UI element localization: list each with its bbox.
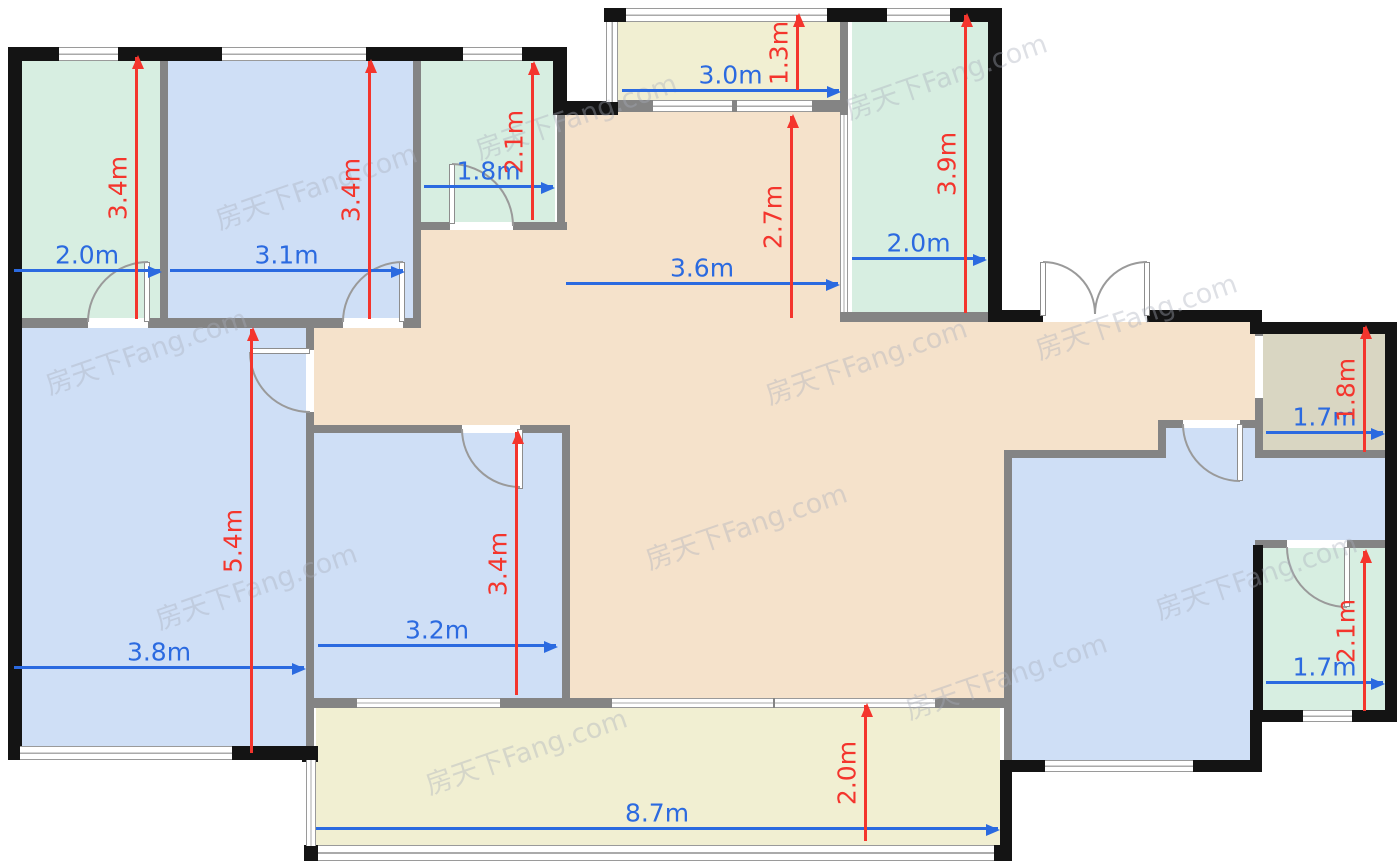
door-opening: [450, 222, 513, 230]
dim-label: 2.0m: [55, 241, 119, 270]
dim-label: 3.4m: [337, 158, 366, 222]
wall-segment: [1250, 322, 1397, 334]
window: [1303, 710, 1352, 722]
window: [306, 760, 316, 846]
room-living-dining-floor: [565, 112, 848, 698]
window: [887, 8, 950, 22]
wall-segment: [604, 8, 626, 22]
dim-label: 2.7m: [759, 185, 788, 249]
dim-living-dining-width: 3.6m: [566, 282, 838, 285]
door-leaf: [449, 164, 455, 224]
dim-label: 3.2m: [405, 616, 469, 645]
window: [463, 47, 522, 61]
door-opening: [343, 318, 403, 328]
door-leaf: [1237, 424, 1243, 481]
window: [318, 845, 994, 861]
wall-segment: [994, 845, 1012, 861]
dim-bedroom-top-left-height: 3.4m: [135, 57, 138, 319]
dim-label: 3.8m: [127, 638, 191, 667]
window: [222, 47, 366, 61]
door-leaf: [250, 348, 310, 354]
wall-segment: [306, 425, 570, 433]
dim-label: 8.7m: [625, 799, 689, 828]
door-opening: [1255, 336, 1263, 398]
window: [653, 100, 732, 112]
dim-label: 1.8m: [1332, 357, 1361, 421]
wall-segment: [553, 101, 618, 115]
dim-bedroom-top-left-width: 2.0m: [14, 269, 160, 272]
door-opening: [1183, 420, 1240, 428]
dim-label: 5.4m: [219, 509, 248, 573]
room-living-dining-floor: [314, 326, 421, 425]
dim-label: 3.6m: [670, 254, 734, 283]
wall-segment: [1385, 322, 1397, 722]
room-bathroom-right-floor: [1263, 548, 1385, 710]
dim-label: 3.4m: [484, 531, 513, 595]
dim-kitchen-height: 3.9m: [964, 15, 967, 313]
room-bedroom-master-floor: [1012, 457, 1255, 760]
room-bedroom-middle-floor: [314, 433, 562, 698]
window: [1045, 760, 1193, 772]
dim-label: 3.4m: [104, 156, 133, 220]
wall-segment: [1000, 760, 1012, 857]
wall-segment: [413, 61, 421, 322]
window: [606, 22, 618, 102]
wall-segment: [160, 61, 168, 318]
wall-segment: [557, 115, 565, 230]
wall-segment: [8, 47, 22, 760]
window: [612, 698, 773, 708]
door-opening: [88, 318, 148, 328]
dim-balcony-bottom-height: 2.0m: [864, 705, 867, 841]
dim-bathroom-top-height: 2.1m: [531, 63, 534, 220]
dim-label: 2.1m: [500, 109, 529, 173]
door-leaf: [1040, 262, 1046, 316]
room-bedroom-top-left-floor: [20, 61, 160, 318]
dim-label: 3.1m: [254, 241, 318, 270]
door-opening: [1287, 540, 1347, 548]
room-kitchen-floor: [852, 20, 988, 312]
dim-balcony-bottom-width: 8.7m: [316, 827, 998, 830]
room-living-dining-floor: [848, 322, 1004, 698]
door-opening: [1043, 310, 1147, 322]
dim-bedroom-middle-width: 3.2m: [318, 644, 556, 647]
dim-label: 3.0m: [698, 61, 762, 90]
wall-segment: [848, 312, 988, 322]
dim-label: 3.9m: [933, 132, 962, 196]
window: [20, 746, 232, 760]
wall-segment: [1255, 450, 1390, 458]
dim-bathroom-right-height: 2.1m: [1363, 551, 1366, 711]
dim-bedroom-left-width: 3.8m: [14, 666, 304, 669]
dim-balcony-top-height: 1.3m: [796, 15, 799, 90]
wall-segment: [1158, 420, 1166, 458]
window: [737, 100, 812, 112]
room-living-dining-floor: [421, 230, 565, 425]
door-leaf: [1144, 262, 1150, 316]
window: [357, 698, 500, 708]
room-bathroom-top-floor: [421, 61, 555, 222]
room-living-dining-floor: [1004, 322, 1158, 450]
room-living-dining-floor: [1158, 322, 1262, 420]
wall-segment: [1253, 545, 1263, 715]
wall-segment: [1004, 453, 1012, 760]
door-arc: [1043, 262, 1095, 314]
dim-bedroom-middle-height: 3.4m: [515, 432, 518, 695]
dim-storage-right-height: 1.8m: [1363, 327, 1366, 452]
dim-label: 2.0m: [833, 741, 862, 805]
floor-plan: 房天下Fang.com 房天下Fang.com 房天下Fang.com 房天下F…: [0, 0, 1400, 868]
wall-segment: [988, 8, 1002, 322]
dim-label: 2.0m: [886, 229, 950, 258]
dim-label: 1.3m: [765, 20, 794, 84]
window: [840, 115, 848, 312]
door-opening: [306, 350, 314, 412]
room-bedroom-top-middle-floor: [168, 61, 413, 322]
room-bedroom-master-floor: [1255, 458, 1385, 540]
window: [59, 47, 118, 61]
dim-living-dining-height: 2.7m: [790, 116, 793, 318]
wall-segment: [562, 433, 570, 698]
dim-label: 2.1m: [1332, 599, 1361, 663]
window: [775, 698, 935, 708]
door-arc: [1095, 262, 1147, 314]
room-bedroom-left-floor: [20, 326, 306, 749]
wall-segment: [1004, 450, 1166, 458]
dim-bedroom-left-height: 5.4m: [250, 329, 253, 753]
dim-bedroom-top-middle-height: 3.4m: [368, 61, 371, 319]
dim-balcony-top-width: 3.0m: [622, 89, 839, 92]
